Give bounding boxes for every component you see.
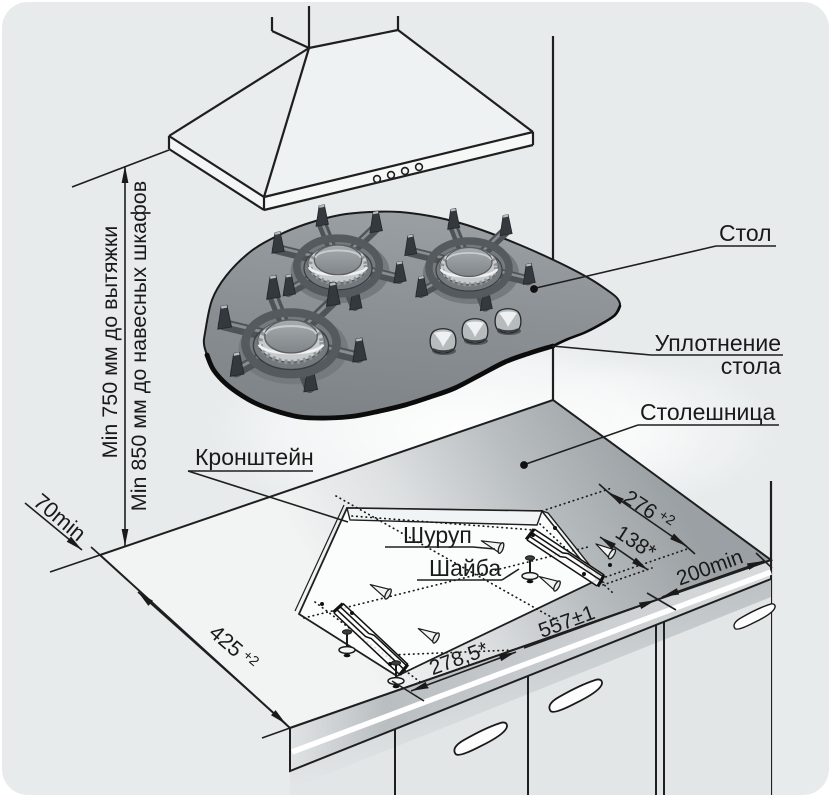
svg-text:Min 750 мм до вытяжки: Min 750 мм до вытяжки: [98, 226, 122, 459]
svg-text:стола: стола: [721, 353, 781, 379]
svg-text:Min 850 мм до навесных шкафов: Min 850 мм до навесных шкафов: [127, 181, 151, 511]
svg-text:Стол: Стол: [719, 220, 772, 246]
svg-text:Кронштейн: Кронштейн: [195, 444, 314, 470]
svg-text:Столешница: Столешница: [640, 399, 776, 425]
svg-text:Шуруп: Шуруп: [403, 522, 472, 548]
svg-text:Шайба: Шайба: [429, 555, 501, 581]
